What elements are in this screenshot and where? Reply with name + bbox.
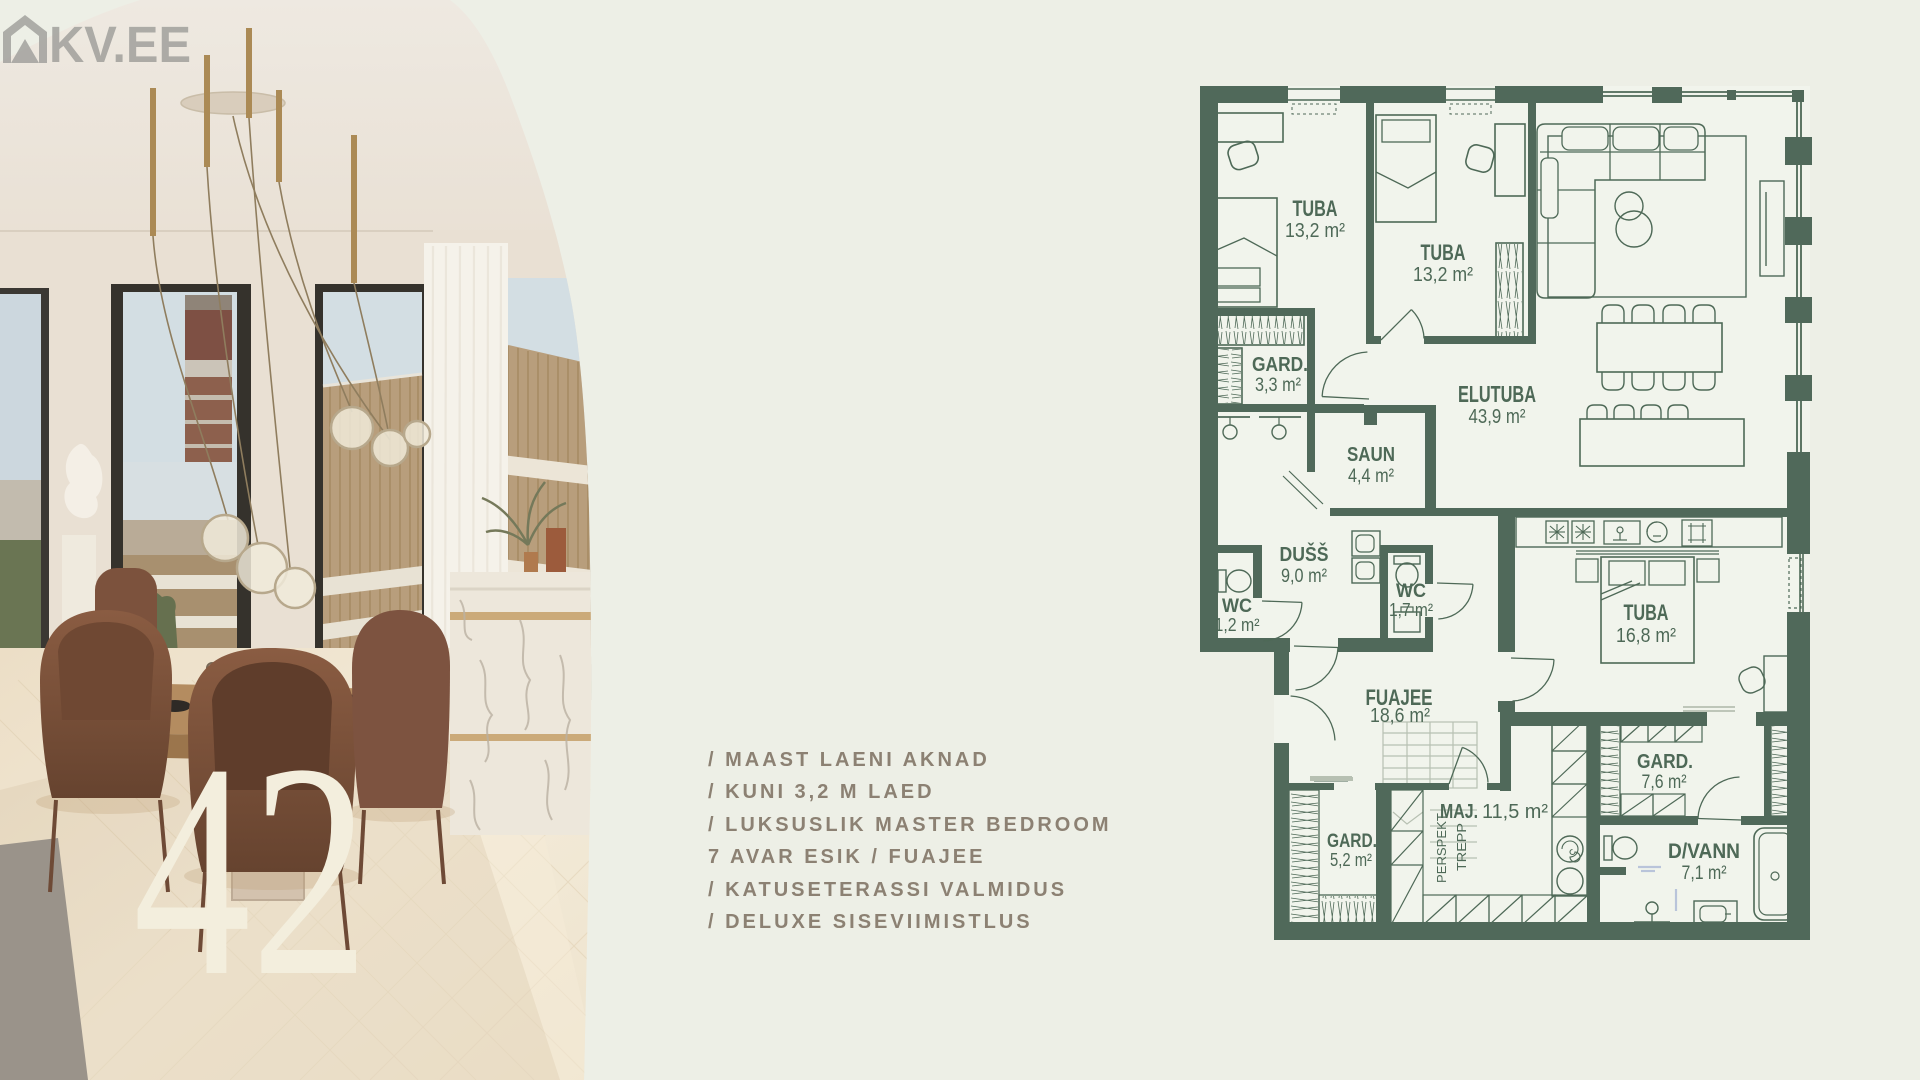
svg-text:1,7 m²: 1,7 m² <box>1389 600 1433 620</box>
svg-text:TREPP: TREPP <box>1454 823 1469 871</box>
svg-text:5,2 m²: 5,2 m² <box>1330 850 1372 870</box>
svg-text:9,0 m²: 9,0 m² <box>1281 566 1327 587</box>
svg-text:4,4 m²: 4,4 m² <box>1348 466 1394 487</box>
svg-text:7,1 m²: 7,1 m² <box>1682 863 1727 884</box>
svg-text:DUŠŠ: DUŠŠ <box>1280 542 1329 566</box>
svg-text:WC: WC <box>1396 581 1426 602</box>
svg-text:WC: WC <box>1222 596 1252 617</box>
svg-text:GARD.: GARD. <box>1327 831 1377 852</box>
svg-text:KV.EE: KV.EE <box>49 16 191 66</box>
svg-text:3,3 m²: 3,3 m² <box>1255 375 1301 396</box>
svg-text:D/VANN: D/VANN <box>1668 840 1740 863</box>
svg-text:13,2 m²: 13,2 m² <box>1285 220 1345 242</box>
svg-text:42: 42 <box>133 701 369 1040</box>
svg-text:TUBA: TUBA <box>1421 240 1466 265</box>
svg-text:7,6 m²: 7,6 m² <box>1642 772 1687 793</box>
svg-text:11,5 m²: 11,5 m² <box>1482 801 1548 823</box>
svg-text:1,2 m²: 1,2 m² <box>1215 615 1260 635</box>
svg-text:GARD.: GARD. <box>1637 751 1693 773</box>
svg-text:SAUN: SAUN <box>1347 444 1395 466</box>
svg-text:PERSPEKT.: PERSPEKT. <box>1434 811 1449 883</box>
svg-text:TUBA: TUBA <box>1624 600 1669 625</box>
svg-text:ELUTUBA: ELUTUBA <box>1458 381 1536 407</box>
svg-text:GARD.: GARD. <box>1252 354 1308 376</box>
svg-text:13,2 m²: 13,2 m² <box>1413 264 1473 286</box>
svg-text:TUBA: TUBA <box>1293 196 1338 221</box>
svg-text:43,9 m²: 43,9 m² <box>1469 406 1526 428</box>
svg-text:16,8 m²: 16,8 m² <box>1616 625 1676 647</box>
svg-text:18,6 m²: 18,6 m² <box>1370 705 1430 727</box>
